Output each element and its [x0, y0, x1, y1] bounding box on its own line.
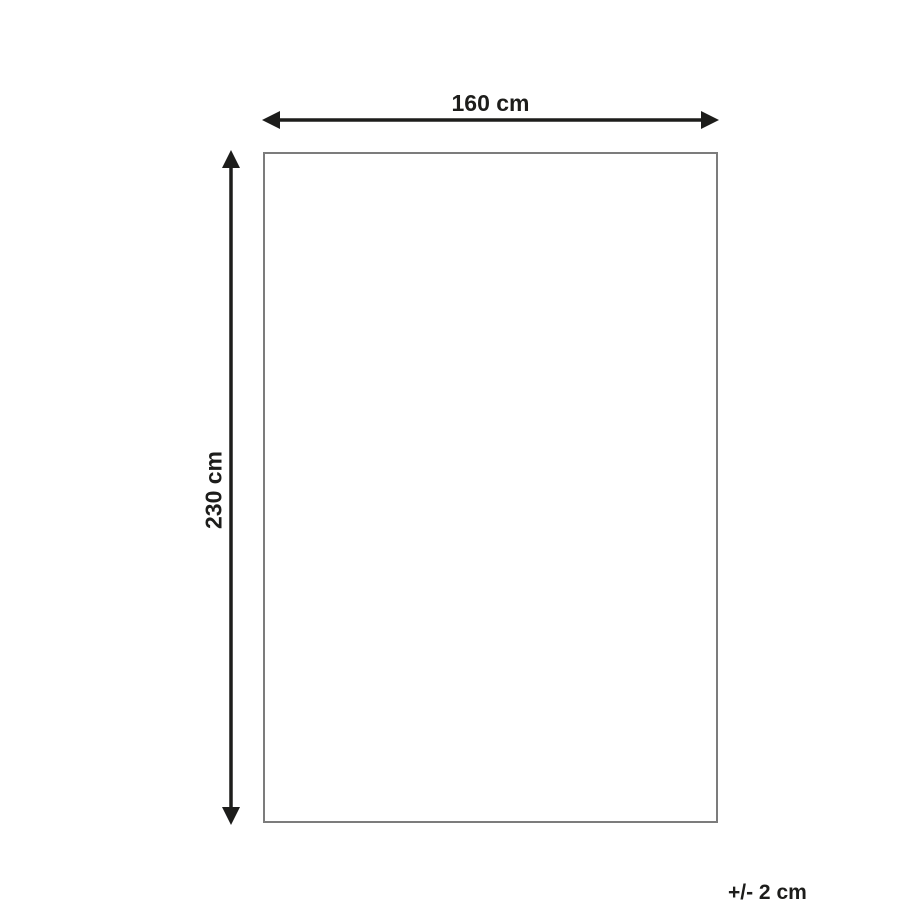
width-dimension-label: 160 cm [263, 92, 718, 115]
dimension-diagram: 160 cm 230 cm +/- 2 cm [0, 0, 920, 920]
tolerance-label: +/- 2 cm [728, 882, 807, 903]
height-dimension-label: 230 cm [203, 451, 226, 529]
product-outline-rectangle [263, 152, 718, 823]
